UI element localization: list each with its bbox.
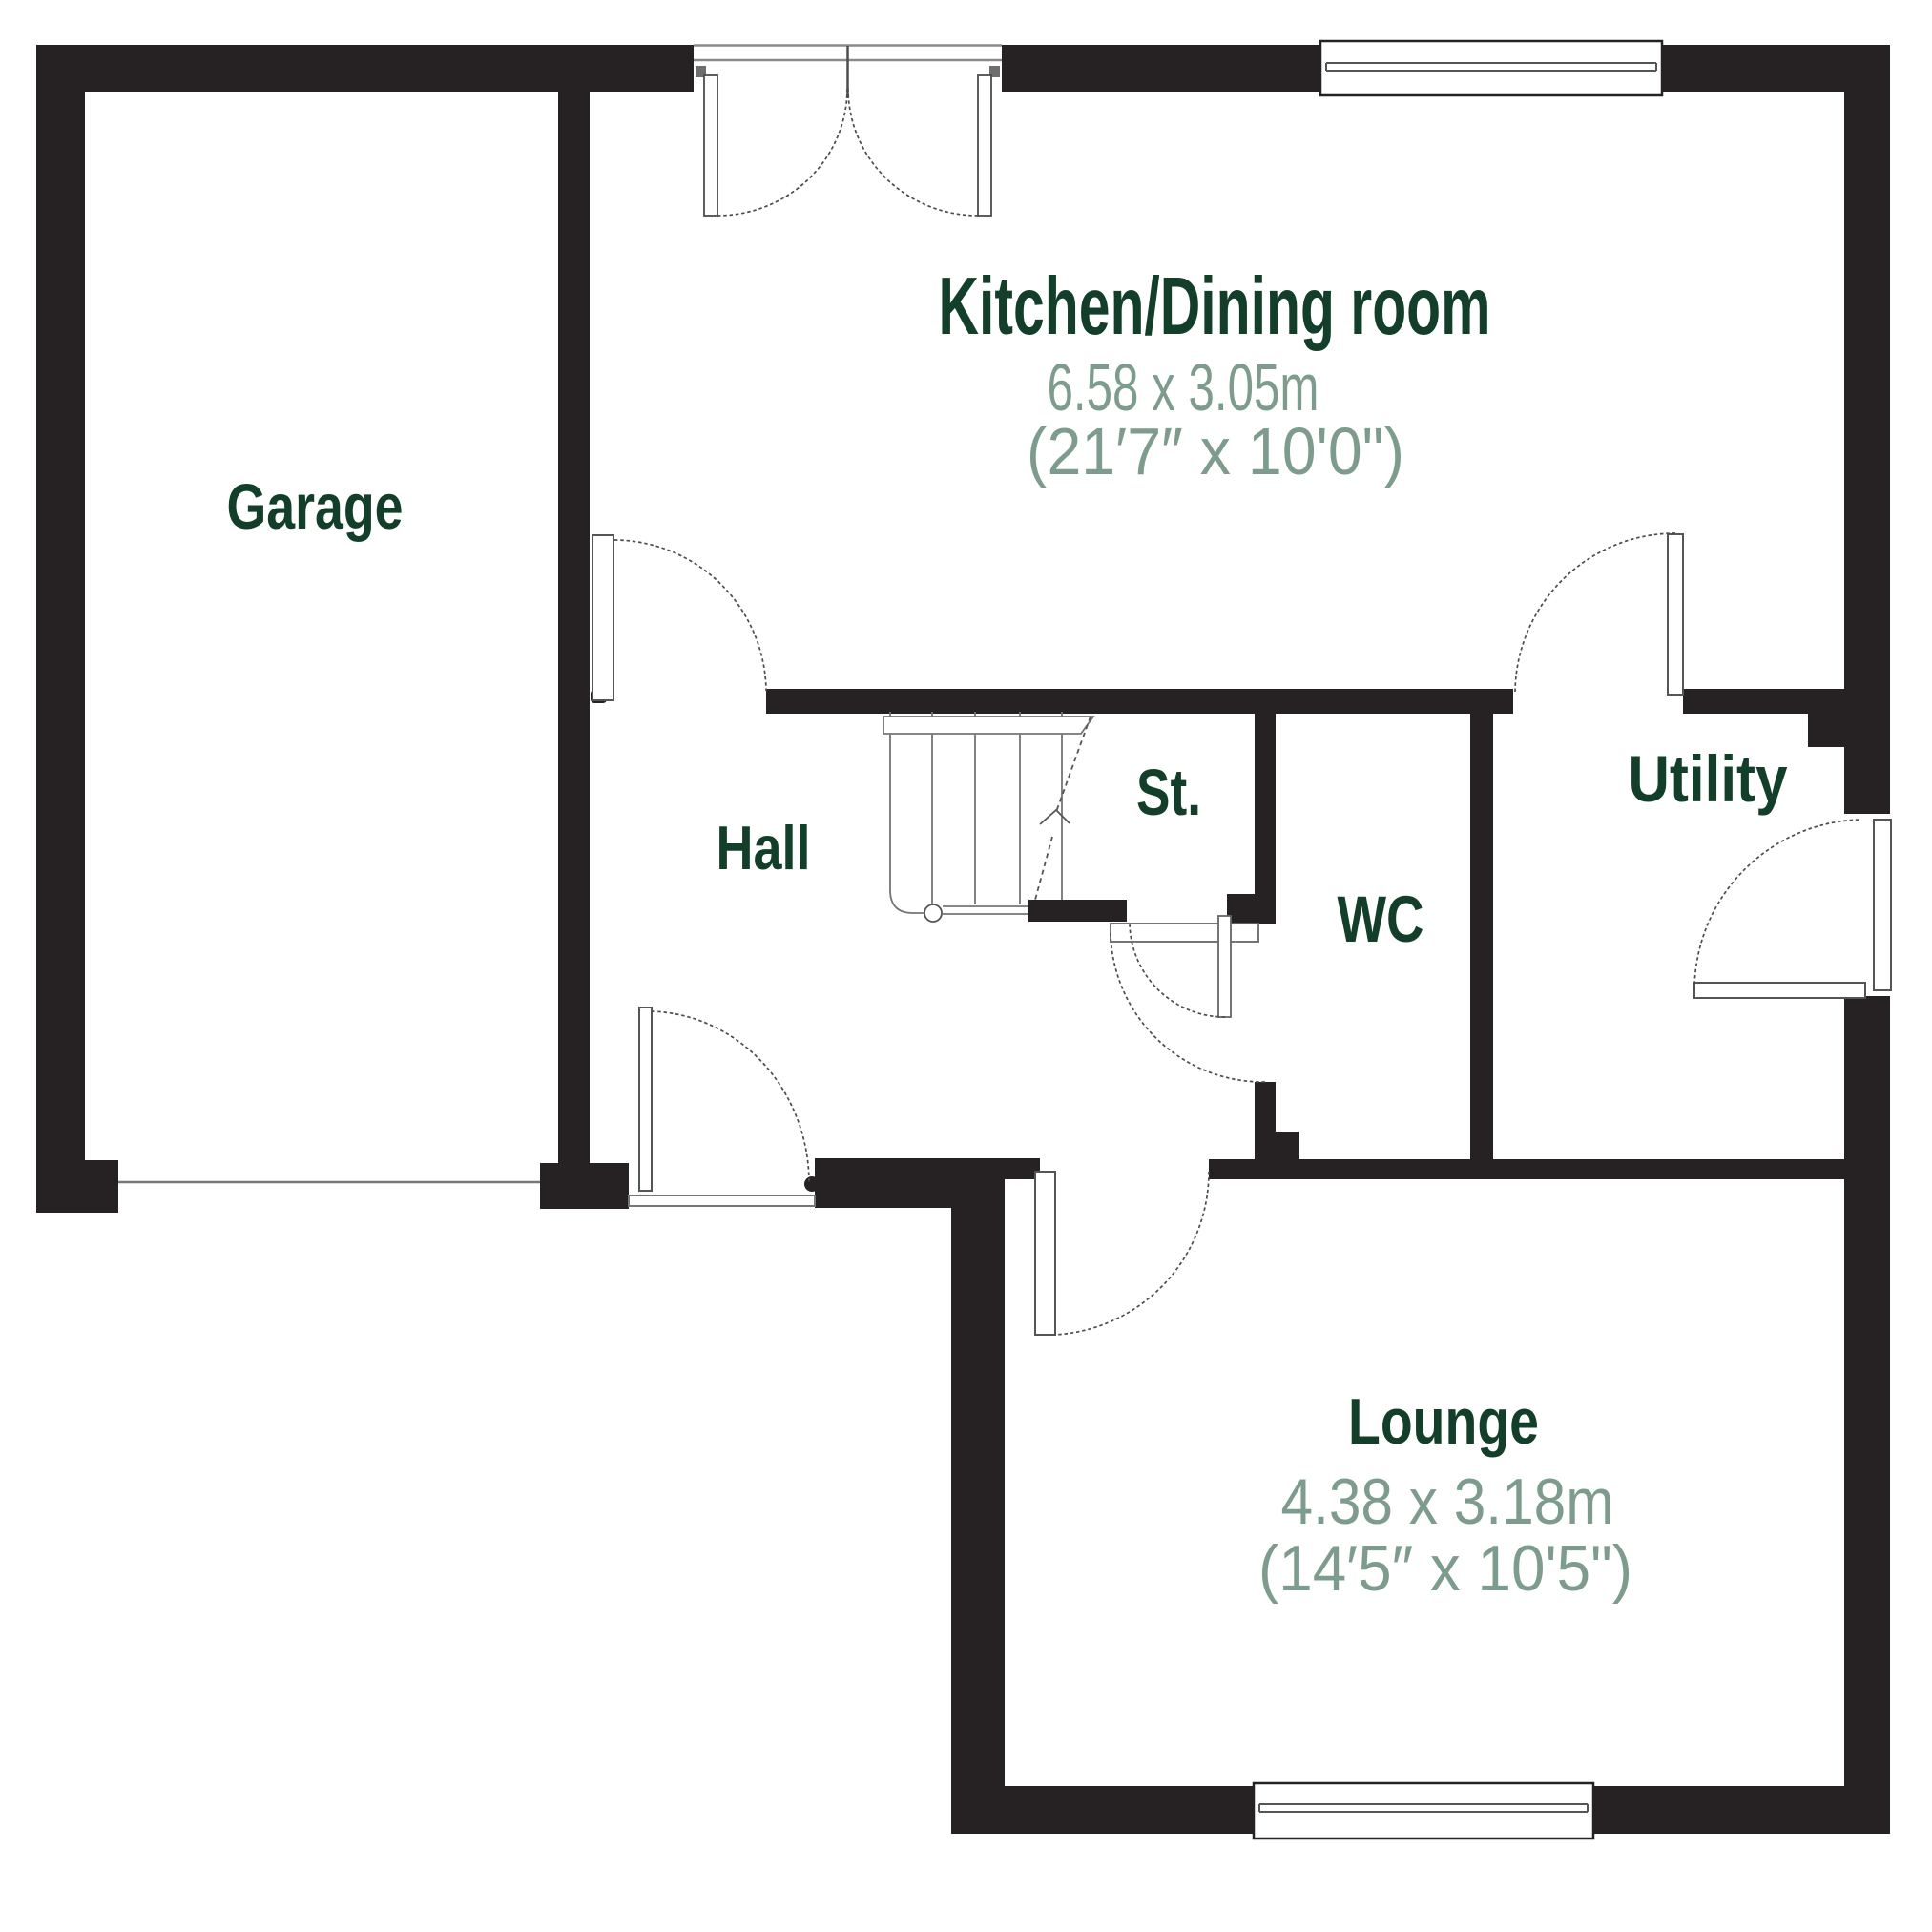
svg-text:4.38 x 3.18m: 4.38 x 3.18m xyxy=(1281,1465,1614,1538)
svg-text:Lounge: Lounge xyxy=(1348,1385,1539,1458)
svg-text:(21′7″ x 10'0"): (21′7″ x 10'0") xyxy=(1027,414,1404,488)
svg-text:Garage: Garage xyxy=(227,471,404,543)
svg-text:Hall: Hall xyxy=(717,813,811,883)
svg-text:St.: St. xyxy=(1136,756,1201,829)
svg-text:WC: WC xyxy=(1338,883,1424,956)
svg-text:(14′5″ x 10'5"): (14′5″ x 10'5") xyxy=(1258,1532,1632,1605)
svg-text:Utility: Utility xyxy=(1629,742,1788,816)
svg-text:Kitchen/Dining room: Kitchen/Dining room xyxy=(939,261,1491,352)
